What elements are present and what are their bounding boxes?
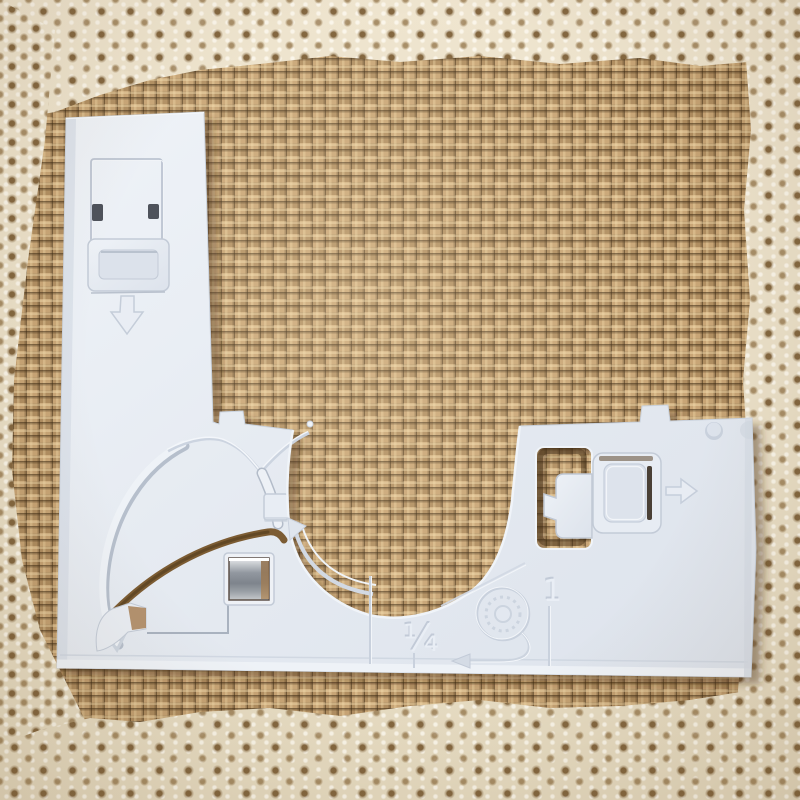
sewing-attachment: ¼ ¼ 1 1 bbox=[0, 0, 800, 800]
magnet-top-highlight bbox=[229, 558, 269, 561]
clip-pin bbox=[647, 466, 652, 520]
one-label: 1 bbox=[543, 574, 562, 609]
slider-button-recess bbox=[99, 250, 158, 279]
right-edge-face bbox=[744, 418, 752, 677]
product-photo-scene: ¼ ¼ 1 1 bbox=[0, 0, 800, 800]
magnet-block bbox=[224, 553, 274, 605]
mold-dot bbox=[307, 421, 313, 427]
fin-tab bbox=[264, 494, 288, 520]
fin-tab-shadow bbox=[264, 517, 288, 522]
clip-frame-gap bbox=[599, 456, 653, 461]
bobbin-hub bbox=[495, 606, 511, 622]
magnet-reflection bbox=[261, 559, 269, 599]
slider-seam bbox=[91, 292, 165, 293]
quarter-inch-label: ¼ bbox=[403, 617, 439, 660]
slider-slot-hole-left bbox=[92, 204, 103, 221]
latch-hinge bbox=[544, 474, 592, 538]
clip-recess bbox=[604, 464, 646, 522]
mold-divot-inner bbox=[707, 423, 721, 437]
slider-slot-hole-right bbox=[148, 204, 159, 219]
